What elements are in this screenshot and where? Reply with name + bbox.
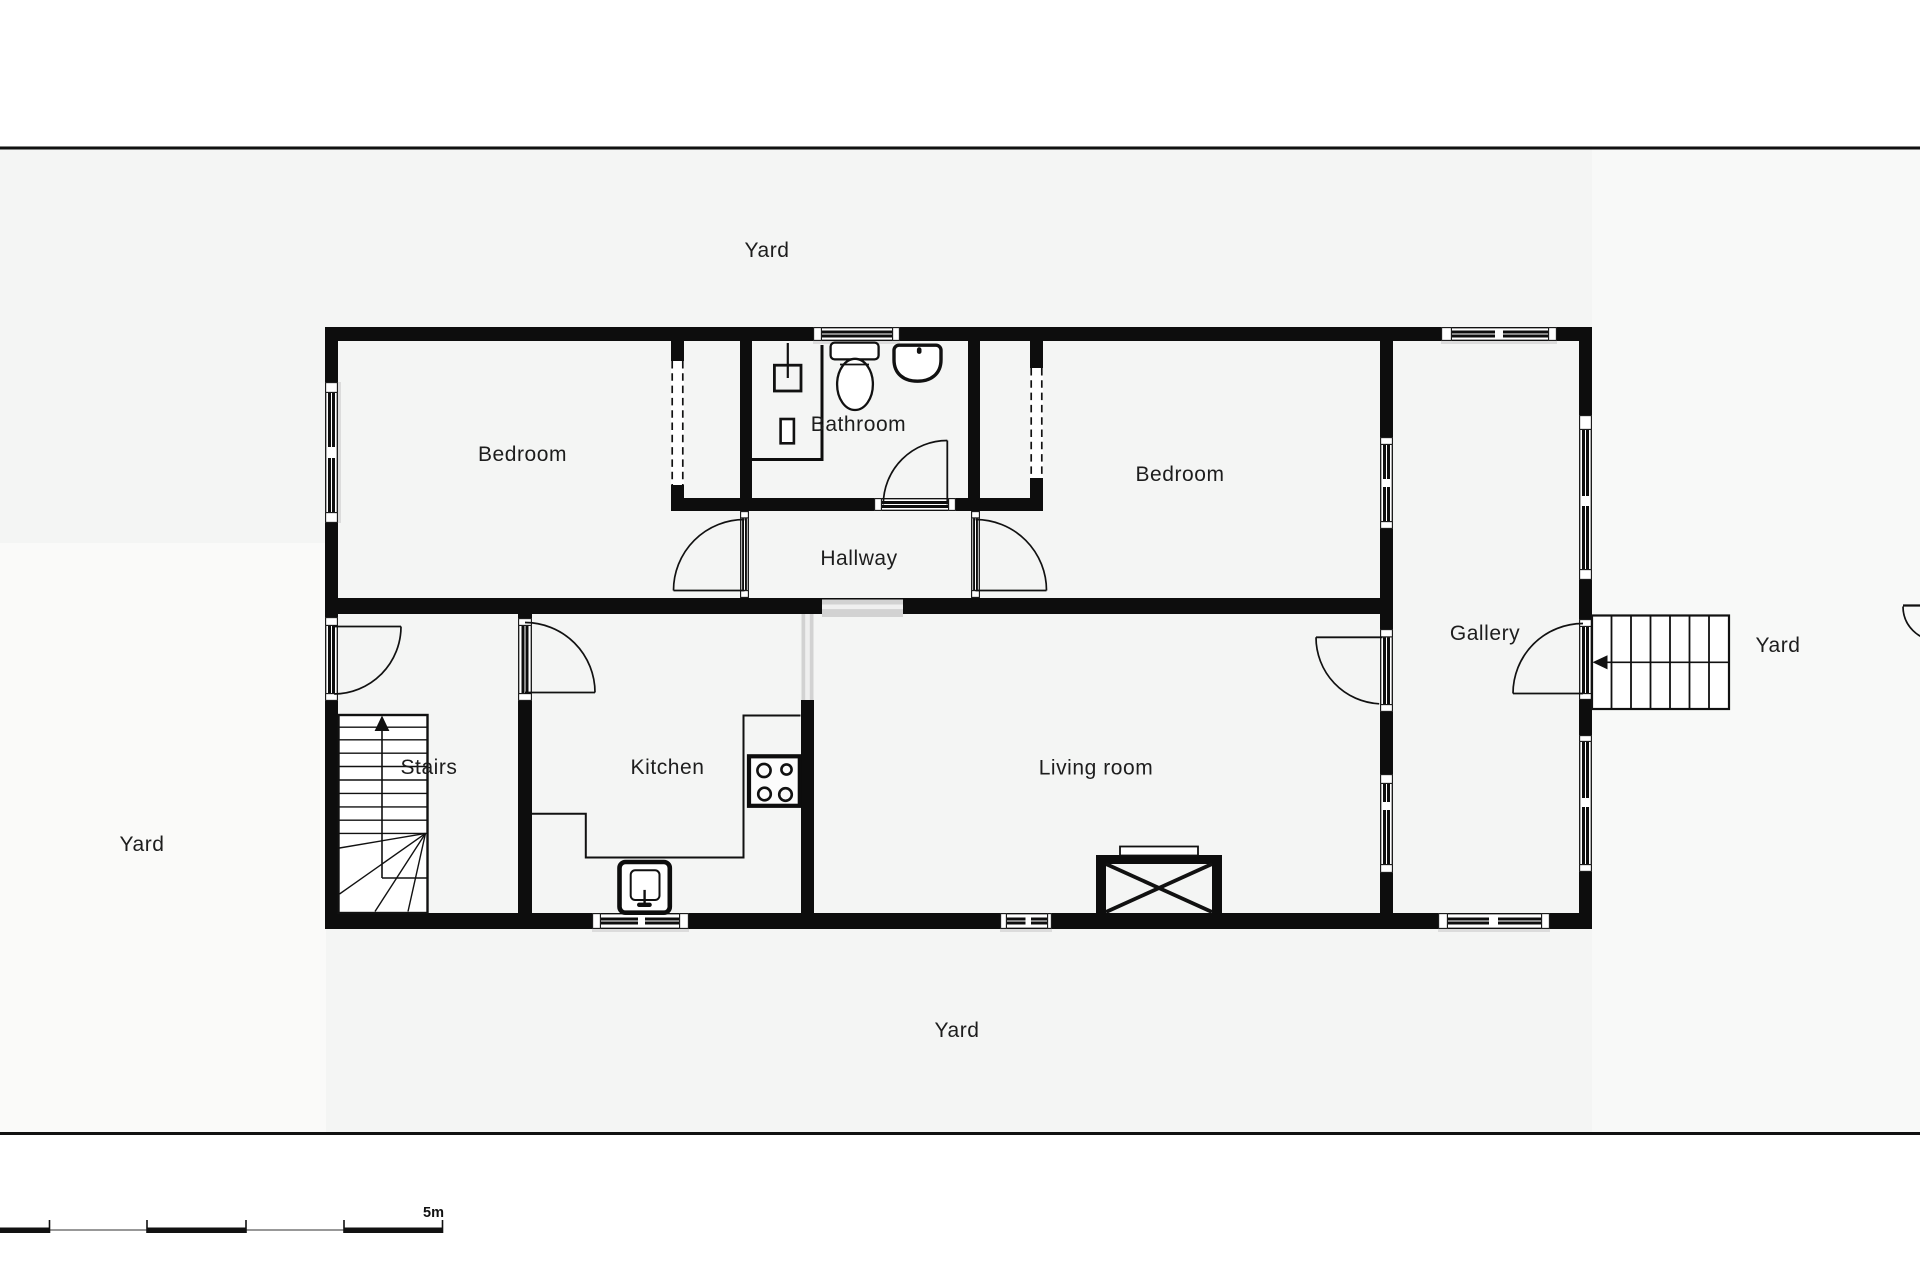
- svg-text:Hallway: Hallway: [820, 547, 897, 570]
- svg-text:Stairs: Stairs: [401, 756, 458, 779]
- svg-text:Yard: Yard: [120, 833, 165, 856]
- svg-text:Living room: Living room: [1039, 757, 1154, 780]
- svg-text:Kitchen: Kitchen: [631, 756, 705, 779]
- svg-text:Yard: Yard: [935, 1019, 980, 1042]
- svg-text:Gallery: Gallery: [1450, 622, 1520, 645]
- svg-text:Bedroom: Bedroom: [1135, 463, 1224, 486]
- svg-text:Bathroom: Bathroom: [811, 413, 906, 436]
- svg-text:5m: 5m: [423, 1205, 444, 1221]
- svg-text:Yard: Yard: [745, 239, 790, 262]
- svg-text:Yard: Yard: [1756, 634, 1801, 657]
- svg-text:Bedroom: Bedroom: [478, 443, 567, 466]
